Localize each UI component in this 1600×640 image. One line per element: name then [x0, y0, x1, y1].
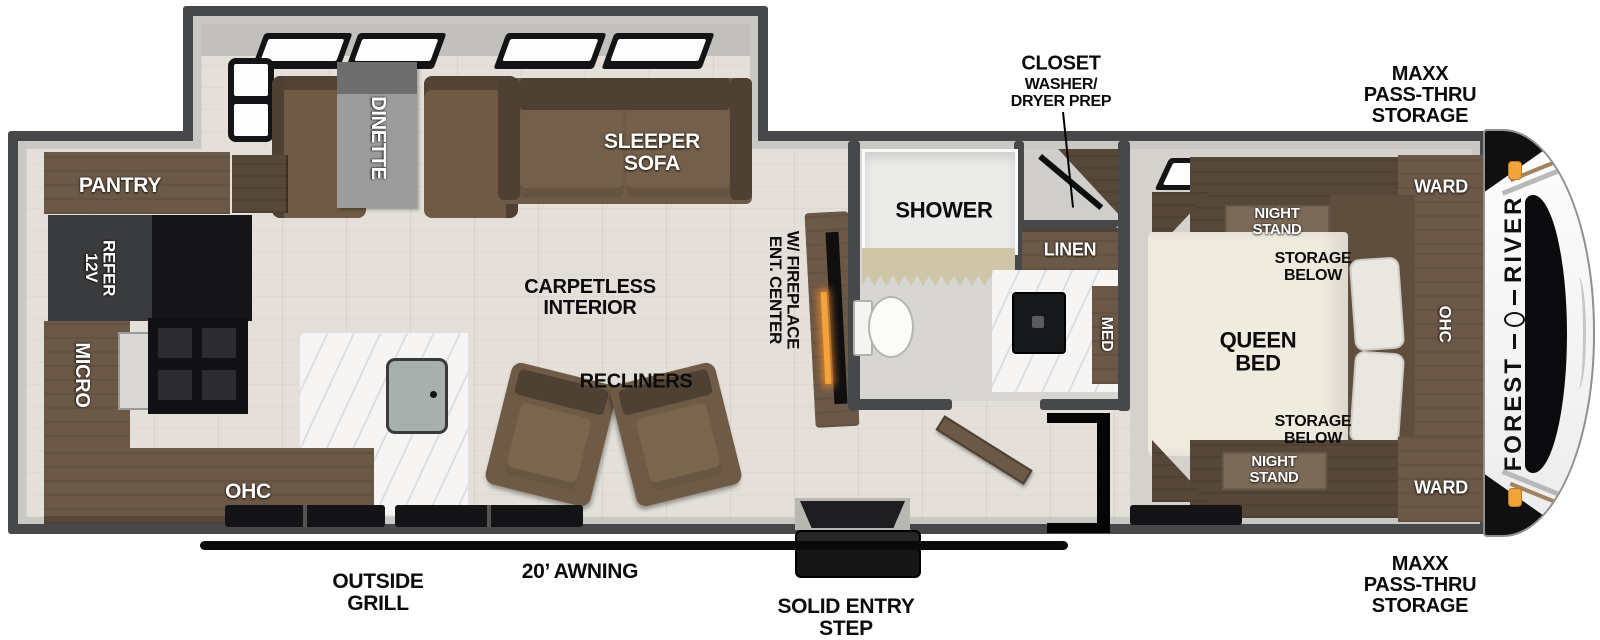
pillow-icon	[1349, 256, 1405, 351]
ward-label: WARD	[1414, 478, 1468, 497]
linen-label: LINEN	[1044, 240, 1097, 259]
bedroom-door-frame	[1047, 413, 1110, 533]
med-label: MED	[1098, 317, 1114, 352]
entry-step-label: SOLID ENTRY STEP	[777, 596, 914, 640]
bedroom-ohc-label: OHC	[1436, 306, 1453, 343]
storage-below-label: STORAGE BELOW	[1275, 414, 1352, 448]
oven-icon	[118, 332, 150, 410]
marker-light-icon	[1508, 161, 1522, 180]
awning-label: 20’ AWNING	[522, 561, 638, 583]
overhead-cabinet	[232, 155, 288, 213]
brand-word: RIVER	[1500, 195, 1528, 283]
bedroom-divider-wall	[1118, 141, 1130, 411]
kitchen-window-icon	[225, 505, 385, 527]
bath-bottom-wall	[848, 399, 952, 410]
brand-logo: FOREST RIVER	[1499, 183, 1529, 483]
entry-step-icon	[795, 530, 921, 578]
toilet-icon	[868, 296, 914, 358]
night-stand-label: NIGHT STAND	[1252, 206, 1301, 238]
recliners-label: RECLINERS	[580, 371, 693, 392]
living-window-icon	[395, 505, 583, 527]
bedroom-window-icon	[1130, 505, 1242, 525]
stove-icon	[148, 318, 248, 414]
sofa-window-icon	[493, 33, 606, 69]
refer-label: 12V REFER	[83, 240, 118, 296]
sofa-window-icon	[601, 33, 714, 69]
ent-center-label: ENT. CENTER W/ FIREPLACE	[767, 231, 802, 349]
bath-bottom-wall	[1040, 399, 1128, 410]
brand-word: FOREST	[1500, 356, 1528, 471]
brand-bar-icon	[1513, 290, 1516, 305]
maxx-storage-label-top: MAXX PASS-THRU STORAGE	[1364, 64, 1477, 128]
dinette-label: DINETTE	[368, 96, 388, 179]
slide-side-window-icon	[228, 58, 274, 142]
sleeper-sofa-label: SLEEPER SOFA	[604, 131, 700, 176]
kitchen-sink-icon	[386, 358, 448, 434]
pantry-label: PANTRY	[79, 175, 161, 197]
awning-line	[200, 541, 1068, 550]
front-cap: FOREST RIVER	[1483, 129, 1595, 537]
outside-grill-label: OUTSIDE GRILL	[332, 571, 423, 616]
brand-bar-icon	[1513, 334, 1516, 349]
night-stand-label: NIGHT STAND	[1249, 454, 1298, 486]
storage-below-label: STORAGE BELOW	[1275, 251, 1352, 285]
entry-door-icon	[795, 498, 910, 530]
kitchen-ohc-label: OHC	[225, 481, 271, 503]
ward-label: WARD	[1414, 177, 1468, 196]
closet-label-sub: WASHER/ DRYER PREP	[1011, 77, 1111, 111]
floorplan: DINETTE SLEEPER SOFA PANTRY 12V REFER MI…	[0, 0, 1600, 640]
maxx-storage-label-bottom: MAXX PASS-THRU STORAGE	[1364, 554, 1477, 618]
bath-sink-icon	[1012, 292, 1066, 354]
windshield-icon	[1525, 195, 1567, 473]
queen-bed-label: QUEEN BED	[1220, 329, 1297, 376]
marker-light-icon	[1508, 488, 1522, 507]
kitchen-counter-dark	[152, 215, 252, 321]
carpetless-interior-label: CARPETLESS INTERIOR	[524, 277, 655, 319]
pillow-icon	[1349, 350, 1405, 445]
closet-label-title: CLOSET	[1021, 53, 1100, 74]
tree-emblem-icon	[1504, 312, 1525, 327]
cap-speed-line	[1571, 277, 1586, 389]
micro-label: MICRO	[72, 342, 92, 407]
shower-label: SHOWER	[895, 198, 992, 221]
bath-left-wall	[848, 141, 860, 409]
